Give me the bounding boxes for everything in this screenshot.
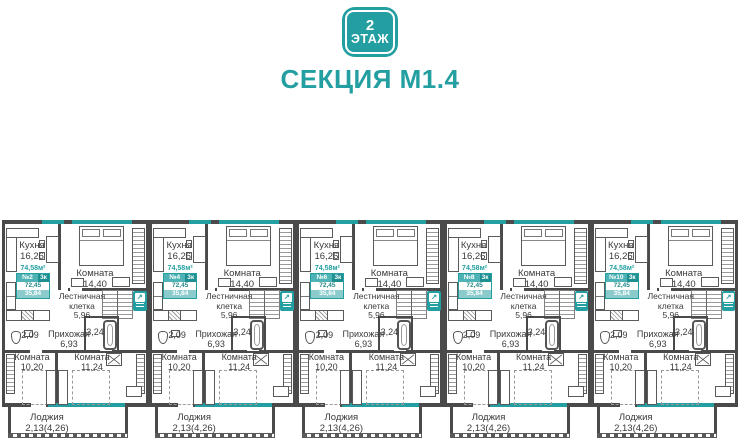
wall [296, 220, 299, 407]
room-area: 16,26 [155, 252, 203, 263]
apartment-area-value: 72,45 [17, 282, 49, 290]
kitchen-sofa [6, 228, 39, 238]
room-area: 5,96 [349, 311, 403, 321]
apartment-total-area: 74,58м² [310, 265, 344, 272]
room-area: 2,09 [16, 330, 44, 340]
apartment-living-area: 35,84 [606, 290, 638, 298]
bathtub-inner [254, 324, 260, 346]
icon-caption-line [724, 306, 733, 307]
kitchen-appliances [153, 282, 163, 310]
cabinet [420, 386, 436, 397]
double-bed [79, 226, 124, 266]
window [514, 220, 574, 224]
room-area: 16,26 [302, 252, 350, 263]
bathtub-inner [401, 324, 407, 346]
room-label-bathroom: 3,24 [526, 327, 548, 337]
apartment-card-box: №6 3к 72,45 35,84 [310, 273, 344, 299]
bathtub-inner [107, 324, 113, 346]
single-bed [205, 370, 215, 405]
room-area: 2,13(4,26) [454, 424, 524, 435]
kitchen-sink [463, 310, 476, 321]
room-label-room-left: Комната 10,20 [450, 352, 498, 372]
room-area: 11,24 [356, 362, 416, 372]
stairs-direction-icon: ↗ [722, 291, 736, 311]
cabinet [126, 386, 142, 397]
cabinet [568, 386, 584, 397]
room-area: 6,93 [338, 339, 388, 349]
pillow [82, 229, 100, 237]
room-area: 3,24 [231, 327, 253, 337]
apartment-number: №4 [164, 274, 185, 282]
room-area: 14,40 [651, 280, 717, 291]
room-label-room-left: Комната 10,20 [155, 352, 203, 372]
bathtub-inner [549, 324, 555, 346]
room-name: Комната [8, 352, 56, 362]
room-name: Комната [62, 352, 122, 362]
stairs-divider [117, 291, 118, 318]
room-area: 11,24 [62, 362, 122, 372]
room-name: Комната [597, 352, 645, 362]
single-bed [340, 370, 350, 405]
room-label-bedroom: Комната 14,40 [651, 269, 717, 290]
stairs-divider [411, 291, 412, 318]
double-bed [373, 226, 418, 266]
window [661, 220, 721, 224]
room-label-wc: 2,09 [163, 330, 191, 340]
pillow [229, 229, 247, 237]
room-area: 11,24 [504, 362, 564, 372]
furniture-outline [22, 370, 48, 405]
window [72, 220, 132, 224]
pillow [671, 229, 689, 237]
room-label-kitchen: Кухня 16,26 [597, 241, 645, 262]
pillow [692, 229, 710, 237]
apartment-card[interactable]: 74,58м² №6 3к 72,45 35,84 [310, 265, 344, 299]
stairs-direction-icon: ↗ [575, 291, 589, 311]
apartment-unit: ↗ [591, 220, 738, 440]
apartment-card-box: №10 3к 72,45 35,84 [605, 273, 639, 299]
apartment-unit: ↗ [296, 220, 443, 440]
apartment-card[interactable]: 74,58м² №2 3к 72,45 35,84 [16, 265, 50, 299]
icon-caption-line [430, 306, 439, 307]
room-label-loggia: Лоджия 2,13(4,26) [601, 413, 671, 434]
wall [591, 220, 594, 407]
kitchen-appliances [595, 282, 605, 310]
room-area: 6,93 [191, 339, 241, 349]
room-area: 3,24 [526, 327, 548, 337]
wardrobe [279, 228, 292, 284]
apartment-card-row: №10 3к [606, 274, 638, 282]
room-area: 10,20 [302, 362, 350, 372]
room-area: 2,13(4,26) [159, 424, 229, 435]
icon-caption-line [724, 303, 733, 304]
divider [7, 296, 15, 297]
apartment-card-box: №2 3к 72,45 35,84 [16, 273, 50, 299]
furniture-outline [464, 370, 490, 405]
stairs-direction-icon: ↗ [133, 291, 147, 311]
furniture-outline [611, 370, 637, 405]
room-label-bedroom: Комната 14,40 [62, 269, 128, 290]
blanket-line [522, 240, 565, 241]
apartment-card[interactable]: 74,58м² №4 3к 72,45 35,84 [163, 265, 197, 299]
icon-caption-line [577, 306, 586, 307]
room-label-stairwell: Лестничная клетка 5,96 [349, 292, 403, 321]
kitchen-sofa [300, 228, 333, 238]
blanket-line [227, 240, 270, 241]
floor-badge: 2 ЭТАЖ [342, 7, 398, 57]
icon-caption-line [283, 303, 292, 304]
wall [8, 407, 11, 435]
arrow-up-icon: ↗ [135, 293, 146, 302]
wall [419, 407, 422, 435]
room-area: 2,13(4,26) [12, 424, 82, 435]
room-area: 16,26 [597, 252, 645, 263]
furniture-outline [72, 370, 110, 405]
room-label-loggia: Лоджия 2,13(4,26) [454, 413, 524, 434]
single-bed [58, 370, 68, 405]
apartment-number: №8 [459, 274, 480, 282]
room-area: 6,93 [633, 339, 683, 349]
floor-number: 2 [366, 18, 374, 34]
window [366, 220, 426, 224]
apartment-card-box: №8 3к 72,45 35,84 [458, 273, 492, 299]
arrow-up-icon: ↗ [282, 293, 293, 302]
floor-plan: ↗ [2, 220, 738, 440]
kitchen-appliances [6, 282, 16, 310]
single-bed [500, 370, 510, 405]
apartment-area-value: 72,45 [164, 282, 196, 290]
apartment-total-area: 74,58м² [458, 265, 492, 272]
room-label-wc: 2,09 [310, 330, 338, 340]
apartment-living-area: 35,84 [459, 290, 491, 298]
room-area: 14,40 [209, 280, 275, 291]
room-label-loggia: Лоджия 2,13(4,26) [159, 413, 229, 434]
wall [125, 407, 128, 435]
stairs-direction-icon: ↗ [427, 291, 441, 311]
wall [155, 407, 158, 435]
wall [302, 407, 305, 435]
pillow [397, 229, 415, 237]
wardrobe [132, 228, 145, 284]
room-name: Комната [155, 352, 203, 362]
apartment-rooms-count: 3к [627, 274, 638, 282]
room-area: 3,24 [378, 327, 400, 337]
room-label-room-right: Комната 11,24 [62, 352, 122, 372]
apartment-rooms-count: 3к [480, 274, 491, 282]
arrow-up-icon: ↗ [576, 293, 587, 302]
room-label-room-right: Комната 11,24 [651, 352, 711, 372]
pillow [103, 229, 121, 237]
apartment-total-area: 74,58м² [16, 265, 50, 272]
apartment-number: №6 [311, 274, 332, 282]
icon-caption-line [136, 306, 145, 307]
single-bed [352, 370, 362, 405]
room-area: 10,20 [597, 362, 645, 372]
cabinet [273, 386, 289, 397]
double-bed [521, 226, 566, 266]
double-bed [668, 226, 713, 266]
wall [272, 407, 275, 435]
apartment-area-value: 72,45 [606, 282, 638, 290]
divider [301, 296, 309, 297]
room-area: 10,20 [450, 362, 498, 372]
apartment-living-area: 35,84 [311, 290, 343, 298]
furniture-outline [366, 370, 404, 405]
room-area: 2,09 [163, 330, 191, 340]
room-label-kitchen: Кухня 16,26 [155, 241, 203, 262]
wall [149, 220, 152, 407]
single-bed [193, 370, 203, 405]
stairs-divider [706, 291, 707, 318]
room-label-bathroom: 3,24 [378, 327, 400, 337]
room-label-kitchen: Кухня 16,26 [450, 241, 498, 262]
stairs-divider [264, 291, 265, 318]
room-area: 6,93 [486, 339, 536, 349]
room-area: 3,24 [673, 327, 695, 337]
pillow [545, 229, 563, 237]
apartment-card-row: №6 3к [311, 274, 343, 282]
room-area: 6,93 [44, 339, 94, 349]
kitchen-sink [315, 310, 328, 321]
icon-caption-line [136, 303, 145, 304]
divider [154, 296, 162, 297]
bathtub-inner [696, 324, 702, 346]
room-label-bathroom: 3,24 [231, 327, 253, 337]
wall [597, 407, 600, 435]
room-label-stairwell: Лестничная клетка 5,96 [55, 292, 109, 321]
apartment-area-value: 72,45 [311, 282, 343, 290]
room-label-room-left: Комната 10,20 [8, 352, 56, 372]
kitchen-appliances [300, 282, 310, 310]
room-area: 2,09 [310, 330, 338, 340]
room-area: 11,24 [651, 362, 711, 372]
room-area: 2,09 [458, 330, 486, 340]
apartment-card-row: №4 3к [164, 274, 196, 282]
room-name: Комната [504, 352, 564, 362]
cabinet [715, 386, 731, 397]
room-label-stairwell: Лестничная клетка 5,96 [497, 292, 551, 321]
room-label-room-right: Комната 11,24 [209, 352, 269, 372]
apartment-rooms-count: 3к [332, 274, 343, 282]
apartment-number: №2 [17, 274, 38, 282]
room-label-bathroom: 3,24 [84, 327, 106, 337]
double-bed [226, 226, 271, 266]
icon-caption-line [430, 303, 439, 304]
room-label-room-right: Комната 11,24 [504, 352, 564, 372]
kitchen-sink [610, 310, 623, 321]
floor-badge-inner: 2 ЭТАЖ [345, 10, 395, 54]
wall [2, 220, 5, 407]
pillow [376, 229, 394, 237]
kitchen-sofa [595, 228, 628, 238]
room-label-room-right: Комната 11,24 [356, 352, 416, 372]
apartment-number: №10 [606, 274, 627, 282]
apartment-unit: ↗ [444, 220, 591, 440]
room-label-stairwell: Лестничная клетка 5,96 [202, 292, 256, 321]
room-area: 5,96 [55, 311, 109, 321]
furniture-outline [219, 370, 257, 405]
apartment-area-value: 72,45 [459, 282, 491, 290]
room-area: 16,26 [450, 252, 498, 263]
room-label-loggia: Лоджия 2,13(4,26) [12, 413, 82, 434]
wall [450, 407, 453, 435]
room-name: Комната [356, 352, 416, 362]
wall [714, 407, 717, 435]
room-label-kitchen: Кухня 16,26 [8, 241, 56, 262]
room-area: 14,40 [356, 280, 422, 291]
wall [735, 220, 738, 407]
room-name: Комната [651, 352, 711, 362]
room-label-stairwell: Лестничная клетка 5,96 [644, 292, 698, 321]
room-area: 5,96 [202, 311, 256, 321]
section-title: СЕКЦИЯ М1.4 [0, 64, 740, 95]
stairs-direction-icon: ↗ [280, 291, 294, 311]
arrow-up-icon: ↗ [723, 293, 734, 302]
arrow-up-icon: ↗ [429, 293, 440, 302]
kitchen-sink [21, 310, 34, 321]
blanket-line [669, 240, 712, 241]
apartment-living-area: 35,84 [164, 290, 196, 298]
apartment-total-area: 74,58м² [163, 265, 197, 272]
apartment-living-area: 35,84 [17, 290, 49, 298]
single-bed [46, 370, 56, 405]
stairs-divider [559, 291, 560, 318]
apartment-card-row: №8 3к [459, 274, 491, 282]
room-label-bedroom: Комната 14,40 [209, 269, 275, 290]
pillow [524, 229, 542, 237]
icon-caption-line [577, 303, 586, 304]
room-area: 11,24 [209, 362, 269, 372]
room-area: 2,09 [605, 330, 633, 340]
apartment-card[interactable]: 74,58м² №10 3к 72,45 35,84 [605, 265, 639, 299]
pillow [250, 229, 268, 237]
divider [449, 296, 457, 297]
furniture-outline [661, 370, 699, 405]
room-name: Комната [209, 352, 269, 362]
furniture-outline [316, 370, 342, 405]
room-label-wc: 2,09 [458, 330, 486, 340]
apartment-unit: ↗ [149, 220, 296, 440]
single-bed [488, 370, 498, 405]
blanket-line [374, 240, 417, 241]
room-label-bedroom: Комната 14,40 [504, 269, 570, 290]
window [219, 220, 279, 224]
room-name: Комната [302, 352, 350, 362]
wardrobe [721, 228, 734, 284]
room-area: 3,24 [84, 327, 106, 337]
room-area: 2,13(4,26) [306, 424, 376, 435]
single-bed [635, 370, 645, 405]
room-area: 5,96 [644, 311, 698, 321]
apartment-total-area: 74,58м² [605, 265, 639, 272]
room-area: 14,40 [504, 280, 570, 291]
room-label-room-left: Комната 10,20 [597, 352, 645, 372]
furniture-outline [169, 370, 195, 405]
wardrobe [426, 228, 439, 284]
room-area: 5,96 [497, 311, 551, 321]
kitchen-appliances [448, 282, 458, 310]
apartment-unit: ↗ [2, 220, 149, 440]
room-label-room-left: Комната 10,20 [302, 352, 350, 372]
wall [444, 220, 447, 407]
room-label-bedroom: Комната 14,40 [356, 269, 422, 290]
room-area: 16,26 [8, 252, 56, 263]
room-label-loggia: Лоджия 2,13(4,26) [306, 413, 376, 434]
room-label-bathroom: 3,24 [673, 327, 695, 337]
divider [596, 296, 604, 297]
room-area: 2,13(4,26) [601, 424, 671, 435]
apartment-rooms-count: 3к [185, 274, 196, 282]
wardrobe [574, 228, 587, 284]
apartment-card-box: №4 3к 72,45 35,84 [163, 273, 197, 299]
furniture-outline [514, 370, 552, 405]
kitchen-sofa [448, 228, 481, 238]
apartment-card[interactable]: 74,58м² №8 3к 72,45 35,84 [458, 265, 492, 299]
floor-word: ЭТАЖ [351, 33, 389, 46]
blanket-line [80, 240, 123, 241]
room-label-wc: 2,09 [16, 330, 44, 340]
room-area: 10,20 [8, 362, 56, 372]
room-area: 14,40 [62, 280, 128, 291]
apartment-card-row: №2 3к [17, 274, 49, 282]
single-bed [647, 370, 657, 405]
room-label-wc: 2,09 [605, 330, 633, 340]
room-name: Комната [450, 352, 498, 362]
icon-caption-line [283, 306, 292, 307]
apartment-rooms-count: 3к [38, 274, 49, 282]
kitchen-sofa [153, 228, 186, 238]
kitchen-sink [168, 310, 181, 321]
wall [567, 407, 570, 435]
room-area: 10,20 [155, 362, 203, 372]
room-label-kitchen: Кухня 16,26 [302, 241, 350, 262]
